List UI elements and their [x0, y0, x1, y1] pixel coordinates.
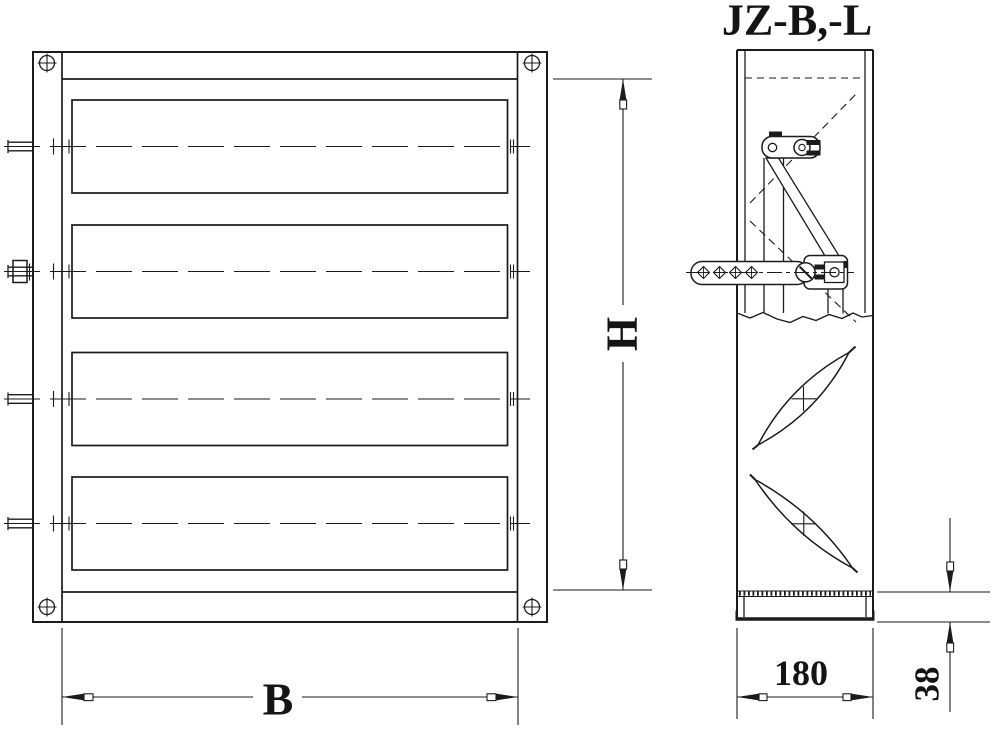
drawing-title: JZ-B,-L [722, 0, 872, 45]
dim-base-height-label: 38 [908, 667, 947, 702]
corner-screw-icon [38, 54, 57, 73]
dim-height-label: H [598, 317, 647, 351]
corner-screw-icon [523, 54, 542, 73]
dim-width-label: B [263, 674, 294, 725]
blade-panels [72, 100, 508, 570]
blade-profiles [750, 347, 858, 573]
corner-screws [38, 54, 542, 617]
blade-shaft-rods [8, 139, 514, 532]
technical-drawing-canvas: H B 180 38 JZ-B,-L [0, 0, 1000, 729]
dimension-depth: 180 [737, 628, 873, 719]
dim-depth-label: 180 [774, 653, 828, 693]
side-view [686, 50, 875, 620]
corner-screw-icon [38, 598, 57, 617]
corner-screw-icon [523, 598, 542, 617]
dimension-height: H [553, 79, 652, 590]
front-view [4, 52, 547, 622]
dimension-base-height: 38 [877, 518, 990, 712]
crank-arm [762, 132, 821, 159]
crank-linkage-mechanism [686, 132, 854, 314]
break-line [737, 313, 873, 323]
front-frame [33, 52, 547, 622]
blade-profile [750, 475, 858, 573]
blade-profile [753, 347, 856, 450]
drive-rod [686, 256, 854, 290]
base-channel [736, 591, 875, 619]
drawing-sheet: H B 180 38 JZ-B,-L [0, 0, 1000, 729]
dimension-width: B [62, 628, 518, 725]
blade-axis-centerlines [4, 147, 530, 524]
